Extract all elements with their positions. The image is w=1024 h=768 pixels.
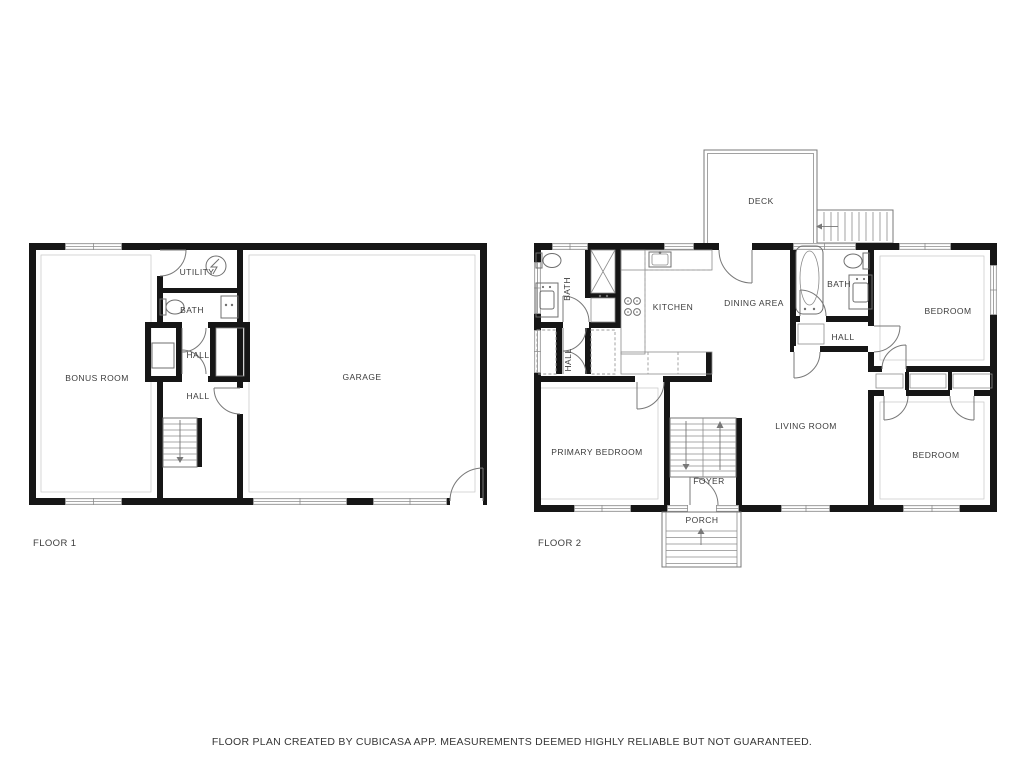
- floor1-label: FLOOR 1: [33, 538, 76, 549]
- wall: [585, 250, 591, 298]
- room-label-utility: UTILITY: [180, 267, 215, 277]
- garage-door: [253, 498, 347, 505]
- room-label-bedroom-bottom: BEDROOM: [912, 450, 959, 460]
- window: [781, 505, 830, 512]
- closet-interior: [876, 374, 903, 388]
- wall: [874, 390, 884, 396]
- room-label-primary-bedroom: PRIMARY BEDROOM: [551, 447, 642, 457]
- wall: [157, 382, 163, 505]
- floor2-label: FLOOR 2: [538, 538, 581, 549]
- wall: [790, 243, 796, 352]
- room-label-garage: GARAGE: [342, 372, 381, 382]
- wall: [210, 322, 216, 382]
- window: [65, 243, 122, 250]
- room-label-deck: DECK: [748, 196, 773, 206]
- room-label-bonus-room: BONUS ROOM: [65, 373, 129, 383]
- wall: [906, 366, 997, 372]
- window: [664, 243, 694, 250]
- wall: [244, 322, 250, 382]
- closet-shelf: [152, 343, 174, 368]
- door: [884, 390, 908, 420]
- wall: [237, 250, 243, 388]
- window: [534, 330, 541, 373]
- disclaimer-text: FLOOR PLAN CREATED BY CUBICASA APP. MEAS…: [212, 736, 812, 748]
- wall: [480, 243, 487, 505]
- wall: [906, 390, 950, 396]
- wall: [589, 322, 621, 328]
- kitchen-sink-icon: [649, 251, 671, 267]
- wall: [534, 322, 563, 328]
- closet-interior: [910, 374, 946, 388]
- deck-stairs: [816, 210, 893, 243]
- primary-bedroom-outline: [539, 388, 658, 499]
- window: [716, 505, 739, 512]
- floor2-plan: DECK BATH HALL KITCHEN DINING AREA BATH …: [534, 150, 997, 567]
- door: [950, 390, 974, 420]
- room-label-kitchen: KITCHEN: [653, 302, 693, 312]
- stairs: [670, 418, 736, 477]
- wall: [176, 322, 182, 382]
- window: [574, 505, 631, 512]
- door: [214, 388, 243, 414]
- wall: [736, 418, 742, 505]
- wall: [237, 414, 243, 505]
- wall: [790, 346, 794, 352]
- wall: [615, 250, 621, 322]
- room-label-dining-area: DINING AREA: [724, 298, 784, 308]
- room-label-living-room: LIVING ROOM: [775, 421, 837, 431]
- wall: [163, 288, 237, 293]
- wall: [534, 376, 635, 382]
- door: [635, 376, 664, 409]
- door: [450, 468, 483, 505]
- wall: [585, 328, 591, 374]
- wall: [820, 346, 874, 352]
- door: [800, 290, 826, 322]
- wall: [664, 382, 670, 505]
- stove-icon: [625, 298, 641, 316]
- wall: [974, 390, 997, 396]
- room-label-hall-upper-f1: HALL: [186, 350, 209, 360]
- floor-plan-image: BONUS ROOM UTILITY BATH HALL HALL GARAGE…: [0, 0, 1024, 768]
- closet-interior: [798, 324, 824, 344]
- room-label-bath-f1: BATH: [180, 305, 204, 315]
- room-label-porch: PORCH: [686, 515, 719, 525]
- room-label-bath-right: BATH: [827, 279, 851, 289]
- wall: [905, 372, 909, 390]
- wall: [29, 243, 36, 505]
- room-label-hall-lower-f1: HALL: [186, 391, 209, 401]
- room-label-hall-right: HALL: [831, 332, 854, 342]
- wall: [585, 293, 621, 298]
- floor1-plan: BONUS ROOM UTILITY BATH HALL HALL GARAGE…: [29, 243, 487, 549]
- toilet-icon: [844, 253, 869, 269]
- closet-shelving: [591, 330, 615, 374]
- kitchen-counter: [621, 250, 712, 374]
- garage-door: [373, 498, 447, 505]
- sink-icon: [221, 296, 238, 318]
- stairs: [163, 418, 197, 467]
- window: [552, 243, 588, 250]
- window: [667, 505, 688, 512]
- wall: [948, 372, 952, 390]
- wall: [868, 366, 882, 372]
- closet-interior: [953, 374, 992, 388]
- wall: [663, 376, 712, 382]
- wall: [556, 328, 562, 374]
- door: [719, 243, 752, 283]
- room-label-hall-left: HALL: [563, 348, 573, 371]
- room-label-bedroom-top: BEDROOM: [924, 306, 971, 316]
- door: [794, 346, 820, 378]
- window: [903, 505, 960, 512]
- wall: [826, 316, 874, 322]
- door: [868, 326, 900, 352]
- room-label-bath-left: BATH: [562, 277, 572, 301]
- floor-plan-canvas: BONUS ROOM UTILITY BATH HALL HALL GARAGE…: [0, 0, 1024, 768]
- window: [990, 265, 997, 315]
- washer-closet-icon: [591, 250, 615, 297]
- wall: [145, 322, 151, 382]
- closet-interior: [591, 298, 615, 322]
- wall: [706, 352, 712, 376]
- wall: [790, 316, 800, 322]
- window: [65, 498, 122, 505]
- room-label-foyer: FOYER: [693, 476, 725, 486]
- wall: [868, 390, 874, 512]
- window: [899, 243, 951, 250]
- wall: [197, 418, 202, 467]
